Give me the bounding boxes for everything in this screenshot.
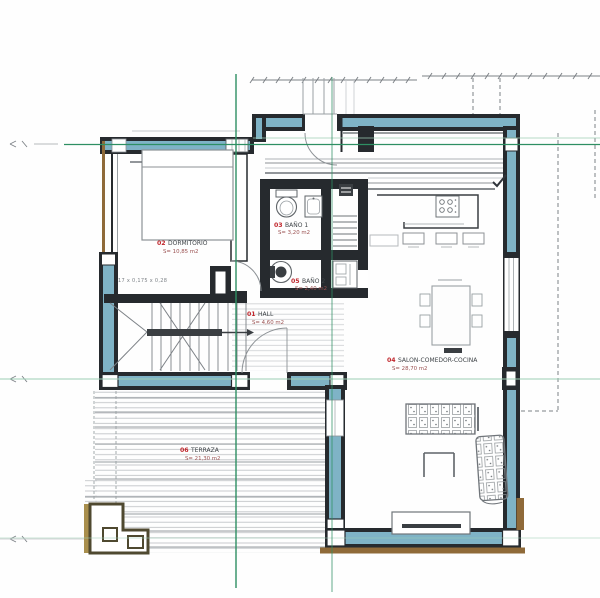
living-window (505, 252, 519, 338)
closet-shelves (333, 184, 357, 246)
dining-chair (444, 348, 462, 353)
floor-plan-canvas: 17 x 0,175 x 0,28 (0, 0, 600, 598)
bath1-label: 03 BAÑO 1 S= 3,20 m2 (274, 212, 313, 236)
bathroom-fixtures (270, 184, 357, 288)
wall-break (112, 139, 126, 152)
entry-canopy (303, 78, 354, 114)
kitchen-island (377, 195, 478, 228)
wood-deck-band-right (517, 498, 525, 530)
axis-marker-left-3 (0, 536, 84, 542)
floor-plan-drawing: 17 x 0,175 x 0,28 (0, 0, 600, 598)
wall-column (502, 367, 520, 390)
bar-stools (370, 233, 484, 247)
coffee-table (424, 453, 454, 477)
toilet2-icon (270, 262, 292, 283)
tv-bench (392, 512, 470, 534)
chaise-lounge (476, 435, 509, 505)
stair-note: 17 x 0,175 x 0,28 (118, 278, 167, 284)
shower-icon (333, 261, 357, 288)
axis-marker-left-1 (10, 141, 58, 147)
living-label: 04 SALON-COMEDOR-COCINA S= 28,70 m2 (387, 347, 482, 372)
stair-handrail (147, 329, 222, 336)
stair-diagonals (110, 303, 205, 370)
terrace-door (327, 400, 344, 436)
sofa (406, 404, 478, 434)
stove-icon (436, 196, 459, 217)
furniture-living (392, 280, 508, 534)
furniture-bedroom (130, 150, 233, 240)
bath2-label: 05 BAÑO 2 S= 2,40 m2 (291, 268, 330, 292)
bed (142, 150, 233, 240)
wood-deck-band-bottom (320, 548, 525, 554)
dining-table (420, 280, 482, 353)
